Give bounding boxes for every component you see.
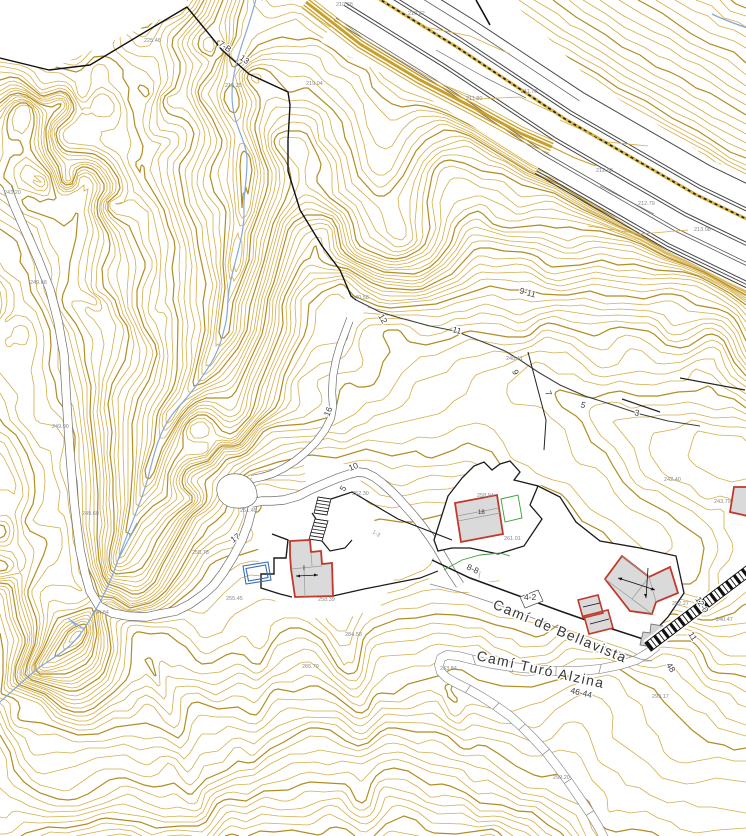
svg-text:210.82: 210.82	[408, 11, 425, 17]
svg-text:265.79: 265.79	[302, 664, 319, 670]
svg-text:225.46: 225.46	[144, 38, 161, 44]
svg-text:219.04: 219.04	[306, 81, 323, 87]
svg-text:240.47: 240.47	[716, 617, 733, 623]
svg-text:299.17: 299.17	[652, 694, 669, 700]
svg-text:I: I	[303, 565, 305, 572]
svg-text:212.79: 212.79	[638, 201, 655, 207]
svg-text:248.41: 248.41	[506, 356, 523, 362]
svg-text:261.01: 261.01	[504, 536, 521, 542]
svg-text:240.58: 240.58	[352, 295, 369, 301]
svg-text:250.78: 250.78	[192, 550, 209, 556]
svg-text:249.68: 249.68	[30, 280, 47, 286]
svg-text:252.27: 252.27	[672, 601, 689, 607]
svg-text:252.30: 252.30	[352, 491, 369, 497]
svg-text:249.60: 249.60	[82, 511, 99, 517]
svg-text:212.82: 212.82	[596, 168, 613, 174]
svg-text:215.25: 215.25	[225, 83, 242, 89]
svg-text:211.80: 211.80	[466, 96, 482, 102]
svg-text:243.79: 243.79	[714, 499, 731, 505]
svg-text:211.70: 211.70	[521, 89, 537, 95]
svg-text:4-2: 4-2	[524, 592, 537, 602]
svg-text:263.84: 263.84	[440, 666, 457, 672]
svg-text:18: 18	[478, 510, 485, 516]
svg-text:284.58: 284.58	[345, 632, 362, 638]
svg-text:255.45: 255.45	[226, 596, 243, 602]
svg-text:243.20: 243.20	[4, 190, 21, 196]
svg-text:294.84: 294.84	[92, 610, 109, 616]
svg-text:210.68: 210.68	[336, 2, 353, 8]
svg-text:299.20: 299.20	[553, 775, 570, 781]
svg-text:258.39: 258.39	[318, 597, 335, 603]
svg-text:213.08: 213.08	[694, 227, 711, 233]
svg-text:258.94: 258.94	[477, 493, 494, 499]
svg-text:251.45: 251.45	[240, 508, 257, 514]
svg-text:249.90: 249.90	[52, 424, 69, 430]
svg-text:242.40: 242.40	[664, 477, 681, 483]
